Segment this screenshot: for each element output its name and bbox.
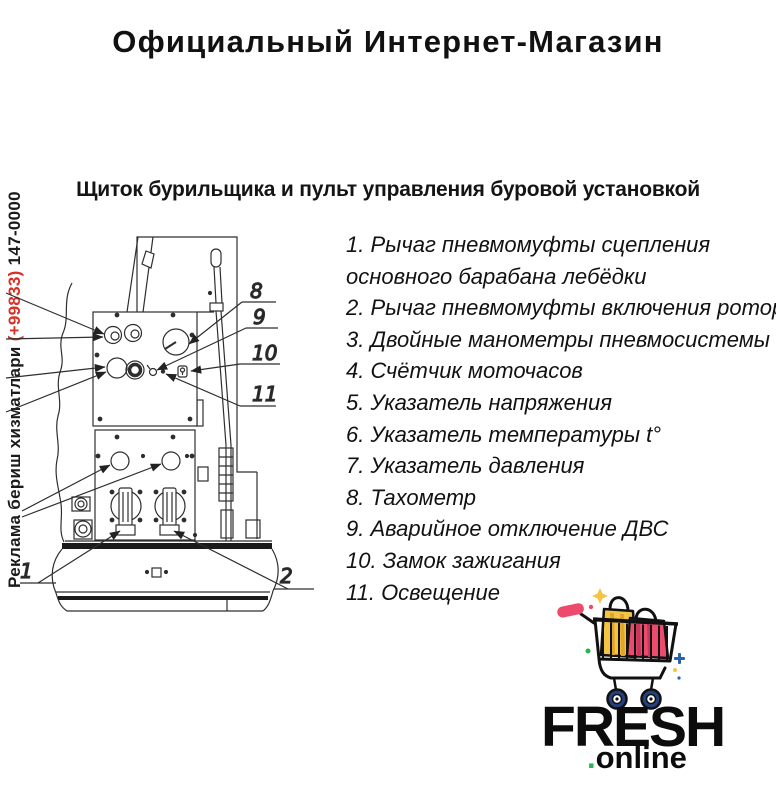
- list-item: 6. Указатель температуры t°: [346, 419, 776, 451]
- callout-10: 10: [252, 341, 277, 365]
- brand-domain-text: .online: [587, 740, 687, 776]
- clutch-lever: [127, 237, 154, 312]
- store-title: Официальный Интернет-Магазин: [0, 24, 776, 60]
- callout-1: 1: [20, 559, 33, 583]
- domain-dot: .: [587, 740, 596, 775]
- list-item: 8. Тахометр: [346, 482, 776, 514]
- sparkle-plus: [674, 653, 685, 664]
- list-item: 5. Указатель напряжения: [346, 387, 776, 419]
- shopping-cart-icon: [548, 578, 748, 713]
- sparkle-star: [592, 588, 608, 604]
- product-promo-image: Официальный Интернет-Магазин Реклама бер…: [0, 0, 776, 800]
- callout-9: 9: [253, 305, 266, 329]
- list-item: 10. Замок зажигания: [346, 545, 776, 577]
- list-item: 3. Двойные манометры пневмосистемы: [346, 324, 776, 356]
- callout-11: 11: [252, 382, 277, 406]
- section-heading: Щиток бурильщика и пульт управления буро…: [0, 178, 776, 202]
- list-item: 1. Рычаг пневмомуфты сцепления основного…: [346, 229, 776, 292]
- list-item: 7. Указатель давления: [346, 450, 776, 482]
- list-item: 9. Аварийное отключение ДВС: [346, 513, 776, 545]
- parts-list: 1. Рычаг пневмомуфты сцепления основного…: [346, 229, 776, 608]
- base-pedestal: [52, 541, 278, 611]
- callout-8: 8: [250, 279, 263, 303]
- list-item: 2. Рычаг пневмомуфты включения ротора: [346, 292, 776, 324]
- upper-panel: [93, 312, 197, 426]
- control-panel-diagram: 1 2 8 9 10 11: [0, 205, 340, 615]
- lower-panel: [95, 430, 195, 540]
- cart-handle-grip: [556, 602, 585, 618]
- domain-suffix: online: [596, 740, 687, 775]
- list-item: 4. Счётчик моточасов: [346, 355, 776, 387]
- callout-2: 2: [280, 564, 293, 588]
